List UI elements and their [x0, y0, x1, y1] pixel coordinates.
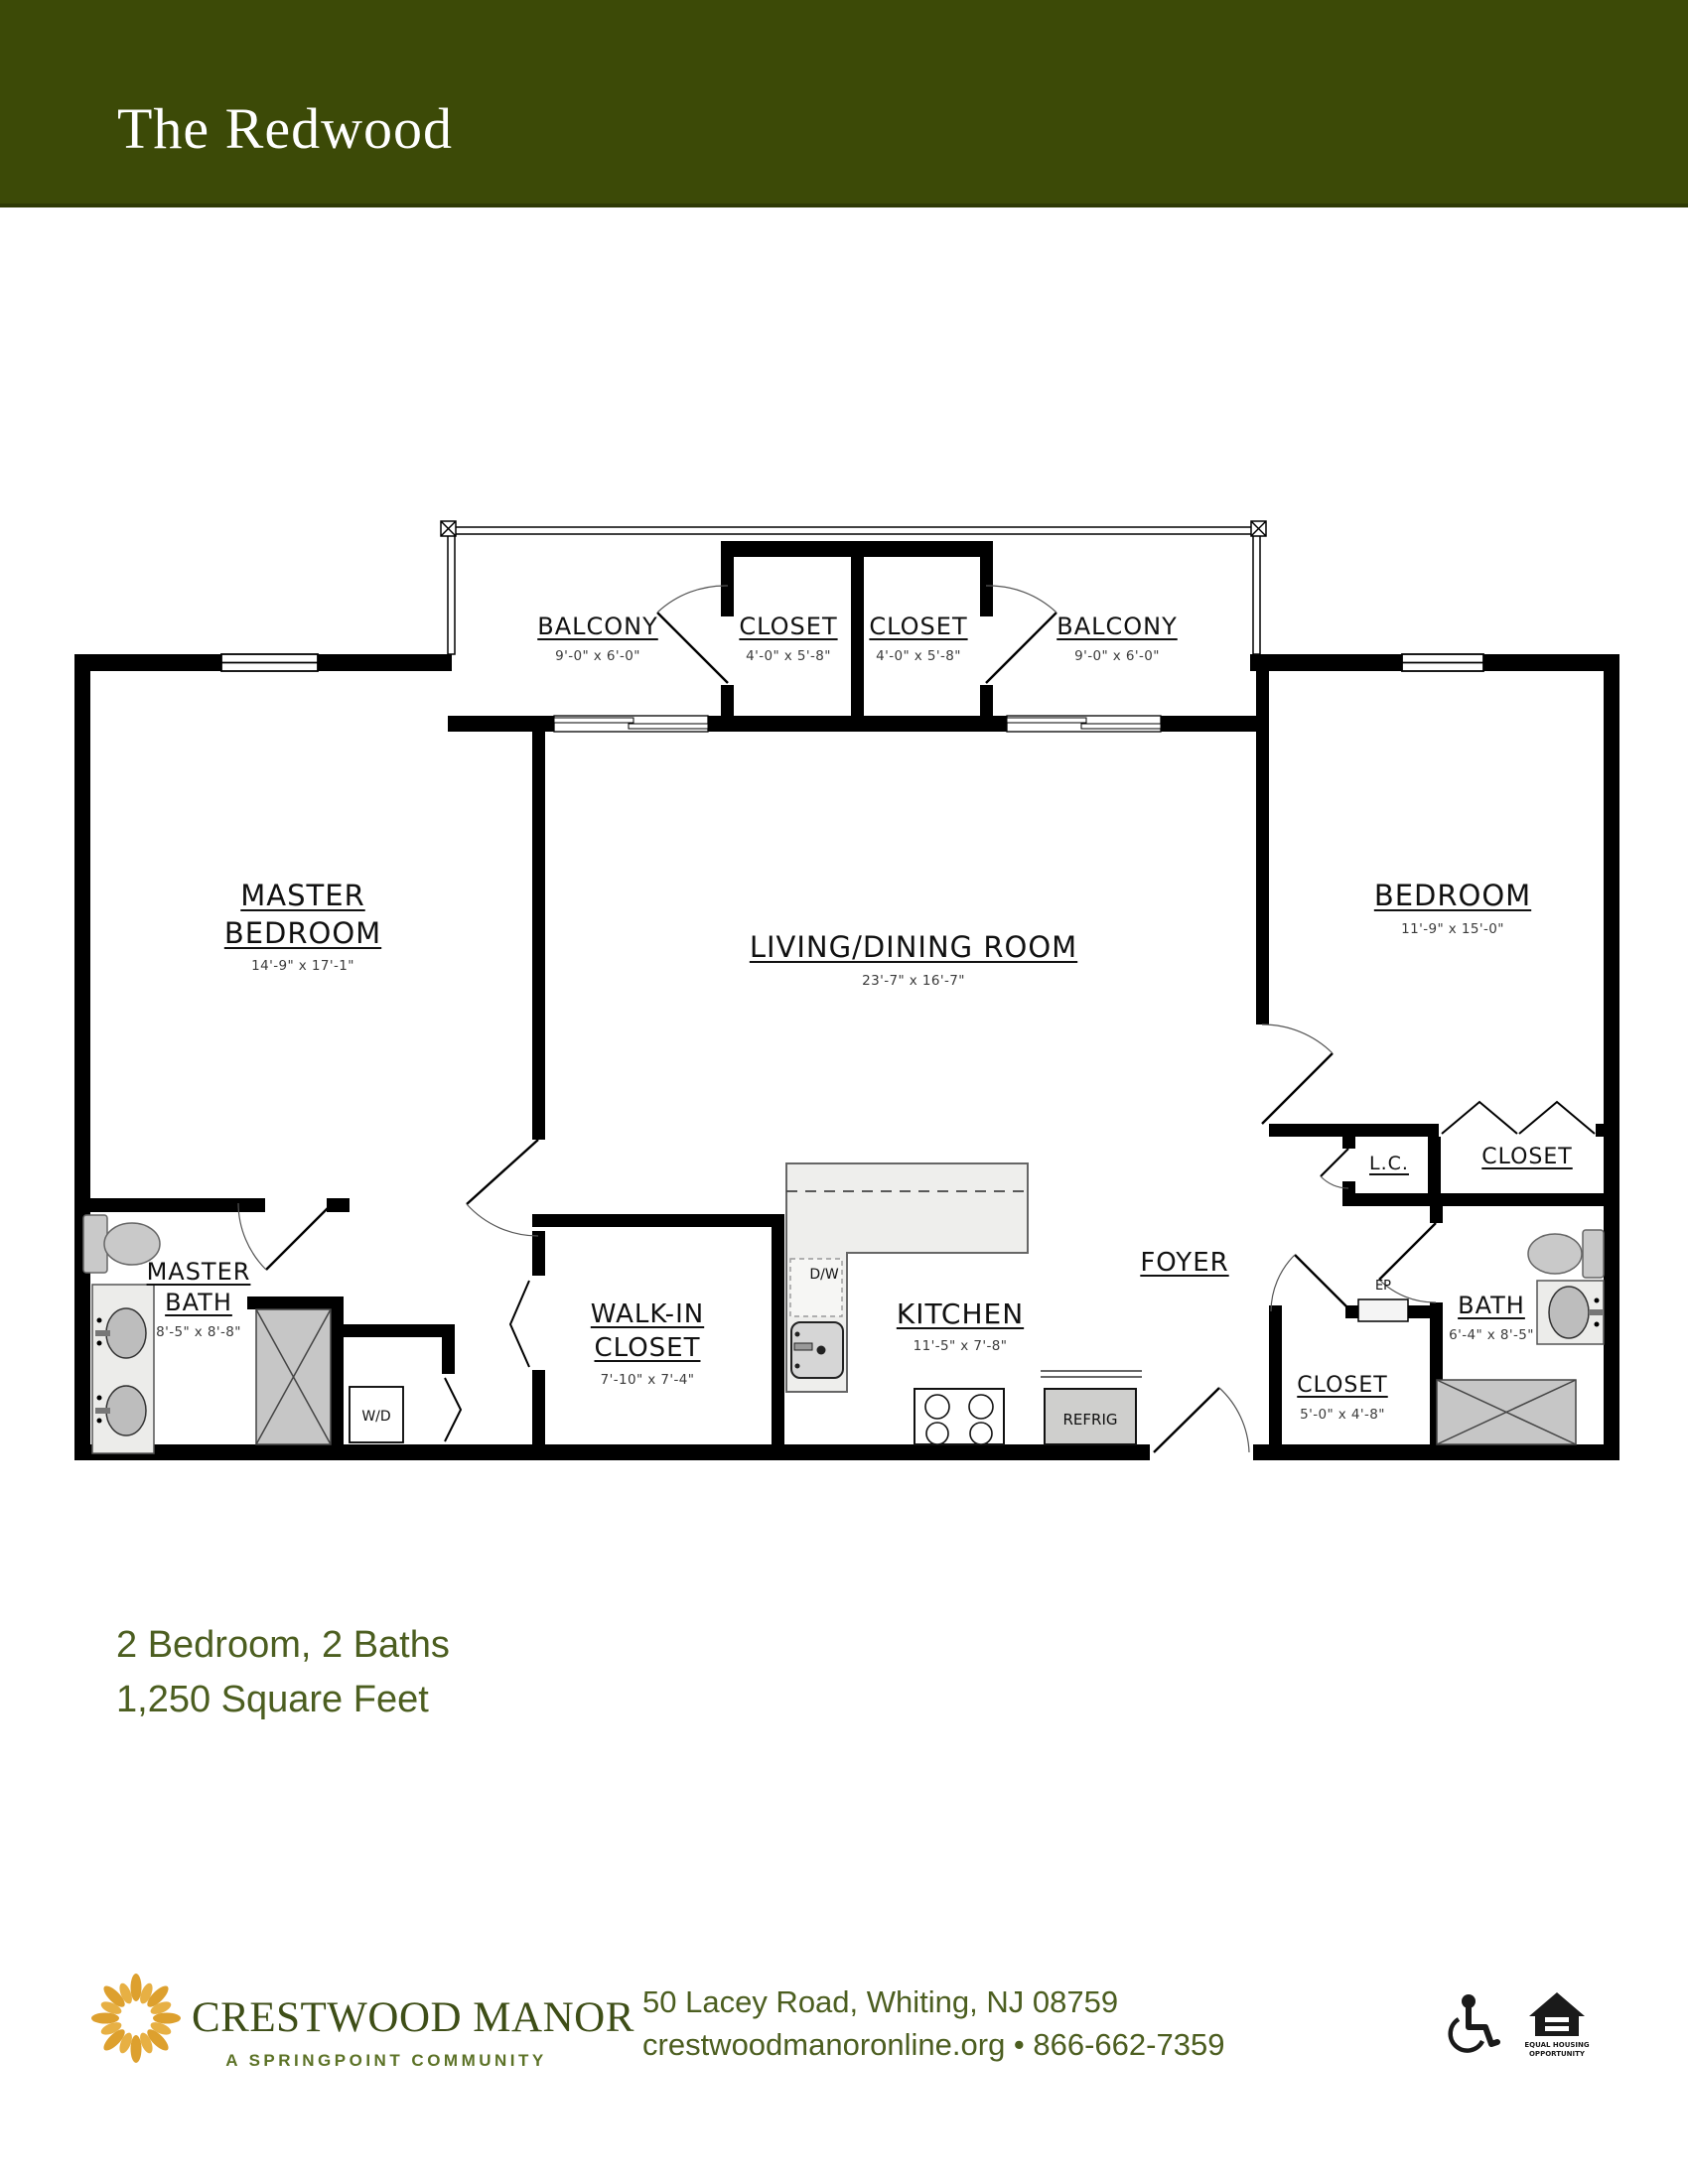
room-dims: 7'-10" x 7'-4"	[591, 1372, 704, 1388]
room-dims: 4'-0" x 5'-8"	[739, 648, 837, 664]
room-dims: 5'-0" x 4'-8"	[1297, 1407, 1387, 1423]
svg-text:EQUAL HOUSING: EQUAL HOUSING	[1524, 2041, 1590, 2049]
electrical-panel-label: EP	[1375, 1279, 1391, 1294]
refrigerator-label: REFRIG	[1063, 1411, 1118, 1429]
footer-contact-block: 50 Lacey Road, Whiting, NJ 08759 crestwo…	[642, 1981, 1224, 2067]
room-dims: 9'-0" x 6'-0"	[537, 648, 658, 664]
room-dims: 6'-4" x 8'-5"	[1449, 1327, 1534, 1343]
room-label-balcony-left: BALCONY 9'-0" x 6'-0"	[537, 612, 658, 664]
entry-opening	[1150, 1441, 1253, 1462]
flyer-page: The Redwood	[0, 0, 1688, 2184]
summary-square-feet: 1,250 Square Feet	[116, 1673, 450, 1727]
room-label-balcony-right: BALCONY 9'-0" x 6'-0"	[1056, 612, 1178, 664]
toilet-icon	[1583, 1230, 1604, 1278]
electrical-panel-box	[1358, 1299, 1408, 1321]
room-label-walk-in-closet: WALK-IN CLOSET 7'-10" x 7'-4"	[591, 1298, 704, 1388]
dishwasher-label: D/W	[809, 1267, 838, 1283]
brand-tagline: A SPRINGPOINT COMMUNITY	[192, 2051, 581, 2071]
room-label-closet-balcony-right: CLOSET 4'-0" x 5'-8"	[869, 612, 967, 664]
website-phone-line: crestwoodmanoronline.org • 866-662-7359	[642, 2024, 1224, 2067]
room-label-master-bath: MASTER BATH 8'-5" x 8'-8"	[147, 1257, 251, 1340]
sink-icon	[106, 1308, 146, 1358]
room-label-living-dining: LIVING/DINING ROOM 23'-7" x 16'-7"	[750, 929, 1077, 989]
address-line: 50 Lacey Road, Whiting, NJ 08759	[642, 1981, 1224, 2024]
room-dims: 11'-5" x 7'-8"	[897, 1338, 1024, 1354]
room-dims: 14'-9" x 17'-1"	[224, 958, 381, 974]
room-label-bedroom-closet: CLOSET	[1481, 1144, 1572, 1172]
sink-icon	[106, 1386, 146, 1435]
room-dims: 11'-9" x 15'-0"	[1374, 921, 1531, 937]
room-label-foyer-closet: CLOSET 5'-0" x 4'-8"	[1297, 1372, 1387, 1423]
unit-summary: 2 Bedroom, 2 Baths 1,250 Square Feet	[116, 1618, 450, 1727]
brand-name: CRESTWOOD MANOR	[192, 1993, 634, 2042]
room-dims: 8'-5" x 8'-8"	[147, 1324, 251, 1340]
room-label-bath: BATH 6'-4" x 8'-5"	[1449, 1291, 1534, 1343]
sunburst-logo	[91, 1974, 181, 2063]
floor-plan-drawing: EQUAL HOUSING OPPORTUNITY	[0, 0, 1688, 2184]
bifold-door-icons	[445, 1102, 1595, 1441]
summary-bed-bath: 2 Bedroom, 2 Baths	[116, 1618, 450, 1673]
room-label-master-bedroom: MASTER BEDROOM 14'-9" x 17'-1"	[224, 878, 381, 974]
svg-text:OPPORTUNITY: OPPORTUNITY	[1529, 2050, 1586, 2058]
room-label-bedroom: BEDROOM 11'-9" x 15'-0"	[1374, 878, 1531, 937]
equal-housing-opportunity-icon: EQUAL HOUSING OPPORTUNITY	[1524, 1992, 1590, 2058]
room-dims: 23'-7" x 16'-7"	[750, 973, 1077, 989]
room-label-foyer: FOYER	[1140, 1247, 1228, 1281]
room-label-closet-balcony-left: CLOSET 4'-0" x 5'-8"	[739, 612, 837, 664]
room-label-linen-closet: L.C.	[1369, 1152, 1409, 1176]
toilet-bowl-icon	[1528, 1234, 1582, 1274]
room-dims: 9'-0" x 6'-0"	[1056, 648, 1178, 664]
sink-icon	[1549, 1287, 1589, 1338]
room-label-kitchen: KITCHEN 11'-5" x 7'-8"	[897, 1297, 1024, 1354]
wheelchair-accessible-icon	[1451, 1994, 1497, 2051]
room-dims: 4'-0" x 5'-8"	[869, 648, 967, 664]
washer-dryer-label: W/D	[361, 1409, 390, 1425]
